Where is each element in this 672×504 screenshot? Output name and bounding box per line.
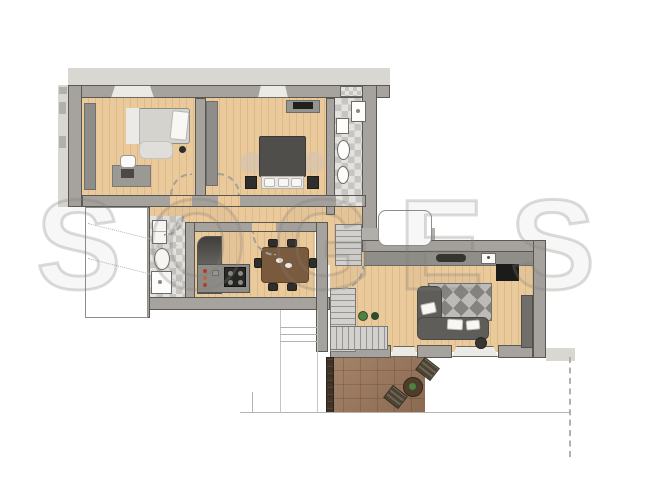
exterior-tick bbox=[252, 392, 253, 413]
kitchen-knob bbox=[203, 276, 207, 280]
property-boundary-dashed bbox=[569, 357, 571, 457]
plate bbox=[285, 263, 292, 268]
bedroom-1-stool bbox=[179, 146, 186, 153]
sofa-pillow bbox=[447, 319, 464, 331]
hob-unit bbox=[436, 254, 466, 262]
kitchen-knob bbox=[203, 269, 207, 273]
wall-kitchen-bottom bbox=[148, 297, 330, 310]
laptop bbox=[121, 169, 134, 178]
nightstand-left bbox=[245, 176, 257, 189]
shower-drain bbox=[356, 109, 360, 113]
bed-cushion bbox=[278, 178, 289, 187]
shower-2-drain bbox=[158, 280, 162, 284]
sink-bathroom-1 bbox=[336, 118, 349, 134]
bathroom-1-window bbox=[340, 86, 363, 97]
stairs-lower-turn bbox=[330, 326, 388, 350]
neighbour-wall-stub bbox=[59, 136, 66, 148]
light-well-step bbox=[280, 341, 318, 342]
double-bed bbox=[259, 136, 306, 177]
sideboard-living bbox=[521, 295, 533, 348]
single-bed-sheet bbox=[126, 108, 140, 144]
bed-cushion bbox=[291, 178, 302, 187]
side-table bbox=[475, 337, 487, 349]
dining-chair bbox=[287, 283, 297, 291]
master-bedroom-window bbox=[258, 85, 288, 98]
terrace-door-opening bbox=[391, 346, 417, 357]
nightstand-right bbox=[307, 176, 319, 189]
toilet-bathroom-1 bbox=[337, 140, 350, 160]
dining-chair bbox=[254, 258, 262, 268]
bed-cushion bbox=[264, 178, 275, 187]
void-skylight-box bbox=[378, 210, 432, 246]
outer-band-top bbox=[68, 68, 390, 85]
toilet-bathroom-2 bbox=[154, 248, 170, 270]
desk-chair bbox=[120, 155, 136, 168]
kitchen-knob bbox=[203, 283, 207, 287]
light-well bbox=[280, 310, 318, 413]
light-well-step bbox=[280, 327, 318, 328]
kitchen-small-appliance bbox=[212, 270, 219, 276]
wall-living-right bbox=[533, 240, 546, 358]
terrace-window-opening bbox=[452, 346, 498, 357]
kitchen-door-opening bbox=[252, 223, 276, 231]
wardrobe-bedroom-1 bbox=[84, 103, 96, 190]
terrace-table-plant bbox=[409, 383, 416, 390]
neighbour-wall-stub bbox=[59, 87, 67, 94]
stove bbox=[224, 267, 246, 287]
light-well-step bbox=[280, 334, 318, 335]
bidet-bathroom-1 bbox=[337, 166, 349, 184]
terrace-hedge bbox=[326, 357, 334, 413]
plate bbox=[276, 258, 283, 263]
floor-plant bbox=[371, 312, 379, 320]
dining-chair bbox=[268, 283, 278, 291]
bedroom-1-door-opening bbox=[170, 196, 192, 206]
dining-chair bbox=[287, 239, 297, 247]
wall-living-bottom-b bbox=[417, 345, 452, 358]
wall-bathroom-2-kitchen bbox=[185, 222, 195, 300]
wall-left bbox=[68, 85, 82, 207]
sofa-pillow bbox=[466, 319, 481, 330]
faucet bbox=[487, 256, 490, 259]
wall-bedroom-divider bbox=[195, 98, 206, 207]
bathroom-1-door-opening bbox=[336, 196, 362, 206]
master-door-opening bbox=[218, 196, 240, 206]
wardrobe-master bbox=[206, 101, 218, 186]
bedroom-1-rug bbox=[139, 141, 173, 159]
dining-chair bbox=[309, 258, 317, 268]
floor-plant bbox=[358, 311, 368, 321]
bedroom-1-window bbox=[111, 85, 154, 98]
tv-cabinet-living bbox=[496, 264, 519, 281]
stove-burners bbox=[228, 271, 233, 276]
tv-master bbox=[293, 102, 313, 109]
single-bed-pillow bbox=[170, 110, 190, 141]
stairs-upper-flight bbox=[335, 224, 362, 266]
floor-plan-scan: SOGES bbox=[0, 0, 672, 504]
neighbour-wall-stub bbox=[59, 102, 66, 114]
